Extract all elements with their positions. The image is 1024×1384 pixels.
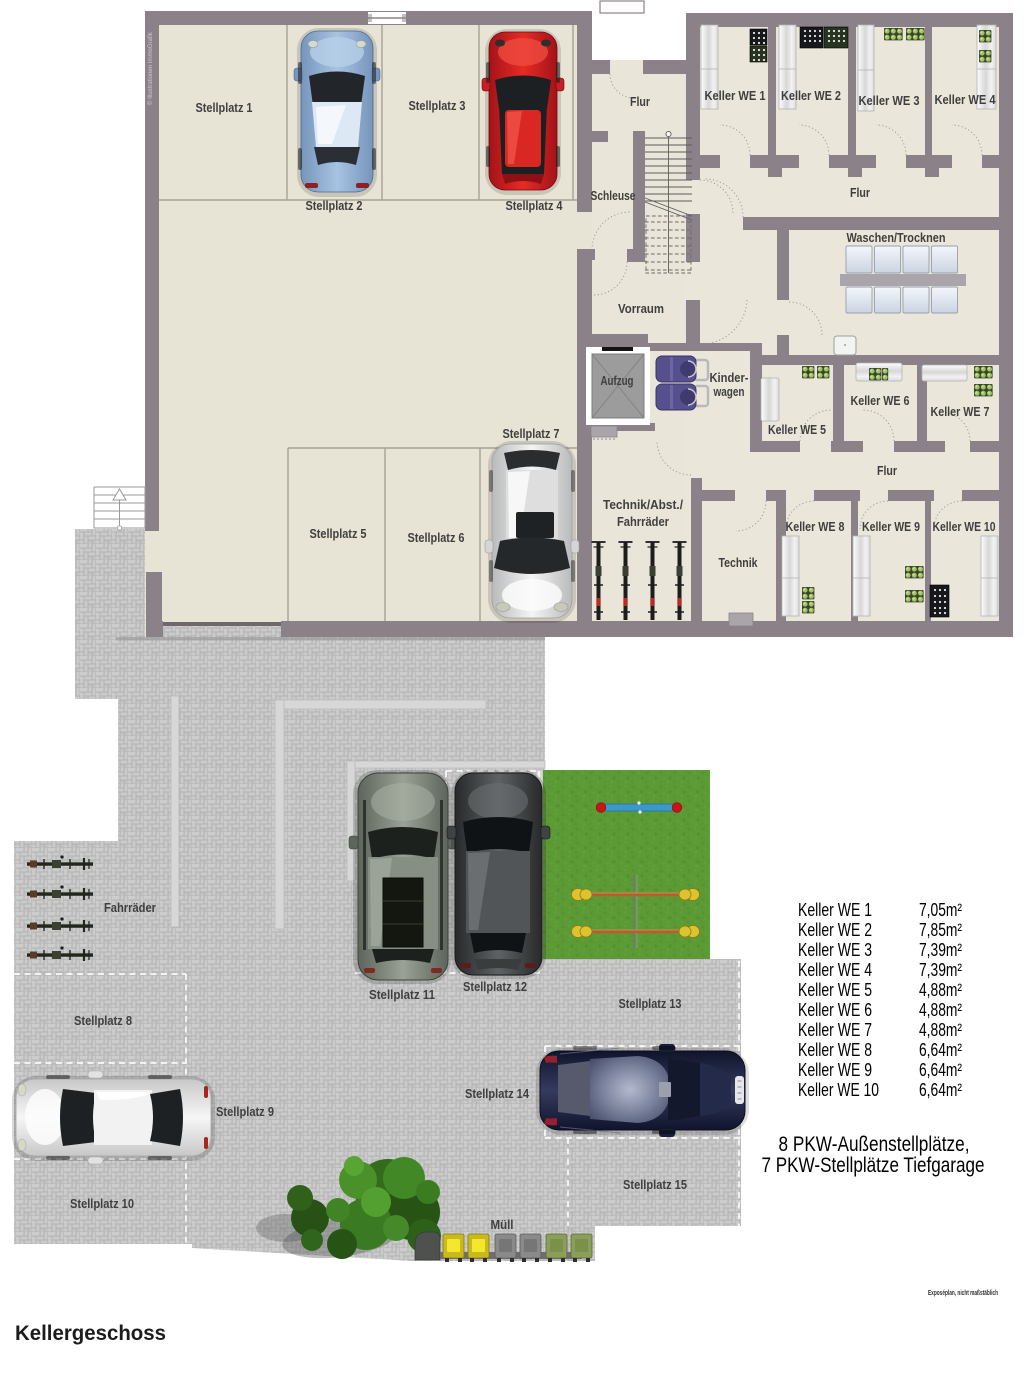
svg-text:Fahrräder: Fahrräder bbox=[104, 901, 156, 915]
svg-text:Keller WE 4: Keller WE 4 bbox=[935, 93, 996, 107]
svg-text:Stellplatz 4: Stellplatz 4 bbox=[506, 199, 563, 213]
svg-text:Flur: Flur bbox=[877, 464, 897, 478]
svg-text:Fahrräder: Fahrräder bbox=[617, 515, 669, 529]
svg-text:Keller WE 6: Keller WE 6 bbox=[851, 394, 910, 408]
svg-text:Keller WE 8: Keller WE 8 bbox=[798, 1040, 872, 1060]
svg-text:Stellplatz 13: Stellplatz 13 bbox=[619, 997, 682, 1011]
svg-text:7,05m²: 7,05m² bbox=[919, 900, 962, 920]
svg-text:7,39m²: 7,39m² bbox=[919, 960, 962, 980]
svg-text:Technik/Abst./: Technik/Abst./ bbox=[603, 498, 683, 512]
svg-text:6,64m²: 6,64m² bbox=[919, 1040, 962, 1060]
svg-text:Flur: Flur bbox=[630, 95, 650, 109]
svg-text:Stellplatz 2: Stellplatz 2 bbox=[306, 199, 363, 213]
svg-text:Stellplatz 5: Stellplatz 5 bbox=[310, 527, 367, 541]
svg-text:8 PKW-Außenstellplätze,: 8 PKW-Außenstellplätze, bbox=[779, 1133, 970, 1156]
svg-text:Stellplatz 7: Stellplatz 7 bbox=[503, 427, 560, 441]
svg-text:Keller WE 1: Keller WE 1 bbox=[705, 89, 766, 103]
svg-text:Keller WE 7: Keller WE 7 bbox=[798, 1020, 872, 1040]
svg-text:Keller WE 3: Keller WE 3 bbox=[798, 940, 872, 960]
svg-text:Waschen/Trocknen: Waschen/Trocknen bbox=[847, 231, 946, 245]
svg-text:Keller WE 6: Keller WE 6 bbox=[798, 1000, 872, 1020]
svg-text:wagen: wagen bbox=[713, 385, 745, 399]
svg-text:Keller WE 1: Keller WE 1 bbox=[798, 900, 872, 920]
svg-text:Stellplatz 1: Stellplatz 1 bbox=[196, 101, 253, 115]
svg-text:Technik: Technik bbox=[719, 556, 758, 570]
svg-text:4,88m²: 4,88m² bbox=[919, 1020, 962, 1040]
svg-text:Müll: Müll bbox=[491, 1218, 514, 1232]
svg-text:Flur: Flur bbox=[850, 186, 870, 200]
svg-text:Keller WE 9: Keller WE 9 bbox=[862, 520, 920, 534]
svg-text:Stellplatz 14: Stellplatz 14 bbox=[465, 1087, 529, 1101]
svg-text:© Illustrationen ImmoGrafik: © Illustrationen ImmoGrafik bbox=[147, 31, 154, 105]
svg-text:7 PKW-Stellplätze Tiefgarage: 7 PKW-Stellplätze Tiefgarage bbox=[762, 1154, 985, 1177]
svg-text:4,88m²: 4,88m² bbox=[919, 980, 962, 1000]
svg-text:Keller WE 2: Keller WE 2 bbox=[798, 920, 872, 940]
svg-text:Keller WE 5: Keller WE 5 bbox=[798, 980, 872, 1000]
svg-text:Keller WE 5: Keller WE 5 bbox=[768, 423, 826, 437]
svg-text:Kellergeschoss: Kellergeschoss bbox=[15, 1322, 166, 1345]
svg-text:7,85m²: 7,85m² bbox=[919, 920, 962, 940]
svg-text:Schleuse: Schleuse bbox=[591, 189, 636, 203]
svg-text:Stellplatz 3: Stellplatz 3 bbox=[409, 99, 466, 113]
svg-text:7,39m²: 7,39m² bbox=[919, 940, 962, 960]
svg-text:Vorraum: Vorraum bbox=[618, 302, 664, 316]
svg-text:Keller WE 10: Keller WE 10 bbox=[933, 520, 996, 534]
svg-text:Stellplatz 11: Stellplatz 11 bbox=[369, 988, 435, 1002]
svg-text:Keller WE 4: Keller WE 4 bbox=[798, 960, 872, 980]
svg-text:Keller WE 9: Keller WE 9 bbox=[798, 1060, 872, 1080]
svg-text:Stellplatz 10: Stellplatz 10 bbox=[70, 1197, 134, 1211]
svg-text:Exposéplan, nicht maßstäblich: Exposéplan, nicht maßstäblich bbox=[928, 1288, 998, 1297]
svg-text:Stellplatz 9: Stellplatz 9 bbox=[216, 1105, 274, 1119]
svg-text:6,64m²: 6,64m² bbox=[919, 1080, 962, 1100]
svg-text:Keller WE 7: Keller WE 7 bbox=[931, 405, 990, 419]
svg-text:Stellplatz 15: Stellplatz 15 bbox=[623, 1178, 687, 1192]
svg-text:6,64m²: 6,64m² bbox=[919, 1060, 962, 1080]
svg-text:Kinder-: Kinder- bbox=[710, 371, 749, 385]
svg-text:Keller WE 8: Keller WE 8 bbox=[786, 520, 845, 534]
svg-text:Stellplatz 6: Stellplatz 6 bbox=[408, 531, 465, 545]
svg-text:Keller WE 3: Keller WE 3 bbox=[859, 94, 920, 108]
svg-text:Stellplatz 8: Stellplatz 8 bbox=[74, 1014, 132, 1028]
svg-text:Stellplatz 12: Stellplatz 12 bbox=[463, 980, 527, 994]
svg-text:Keller WE 2: Keller WE 2 bbox=[781, 89, 841, 103]
svg-text:Keller WE 10: Keller WE 10 bbox=[798, 1080, 879, 1100]
svg-text:4,88m²: 4,88m² bbox=[919, 1000, 962, 1020]
svg-text:Aufzug: Aufzug bbox=[601, 374, 634, 388]
